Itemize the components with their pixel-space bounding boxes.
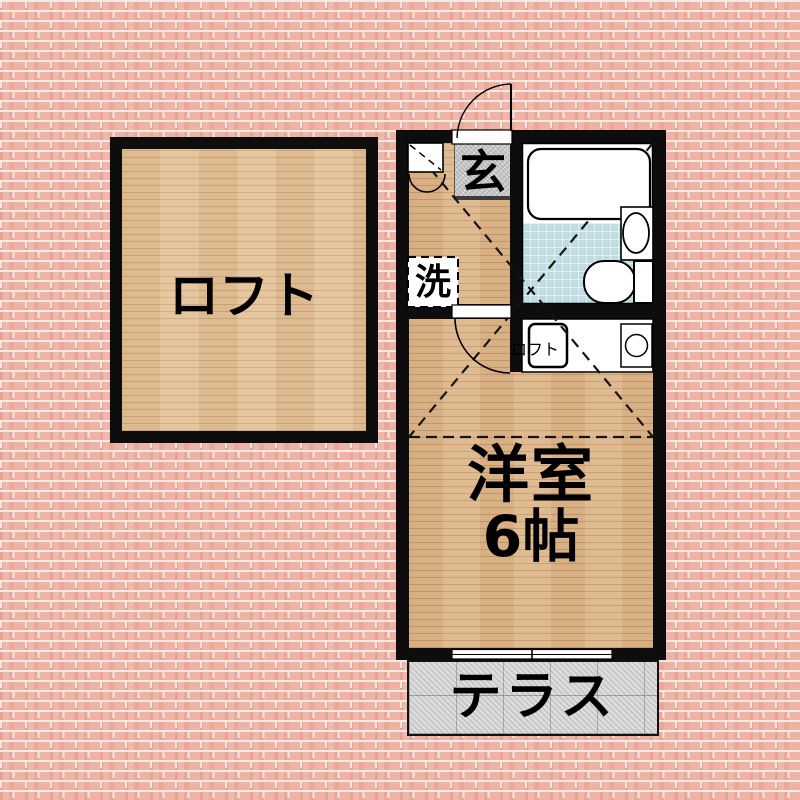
room-door-opening [452, 305, 511, 318]
floor-plan-canvas: ロフト 玄 洗 ロフト 洋室 6帖 テラス [0, 0, 800, 800]
wash-basin [621, 207, 653, 260]
entrance-door [452, 84, 512, 144]
fixtures-layer [0, 0, 800, 800]
terrace-label: テラス [407, 669, 659, 725]
toilet-bowl-icon [584, 261, 635, 303]
western-room-size: 6帖 [409, 507, 653, 567]
western-room-label: 洋室 6帖 [409, 443, 653, 567]
basin-bowl-icon [623, 213, 649, 253]
loft-access-label: ロフト [511, 341, 559, 359]
room-door [452, 305, 511, 373]
closet [408, 143, 445, 192]
entrance-opening [452, 130, 512, 144]
loft-room-label: ロフト [122, 263, 366, 329]
sliding-window [452, 650, 612, 660]
room-door-swing [455, 318, 510, 373]
closet-door-left-swing [409, 174, 427, 192]
entrance-label: 玄 [454, 147, 512, 197]
washer-label: 洗 [408, 263, 458, 303]
toilet-tank-icon [634, 261, 653, 303]
western-room-name: 洋室 [409, 443, 653, 507]
toilet [584, 261, 653, 303]
